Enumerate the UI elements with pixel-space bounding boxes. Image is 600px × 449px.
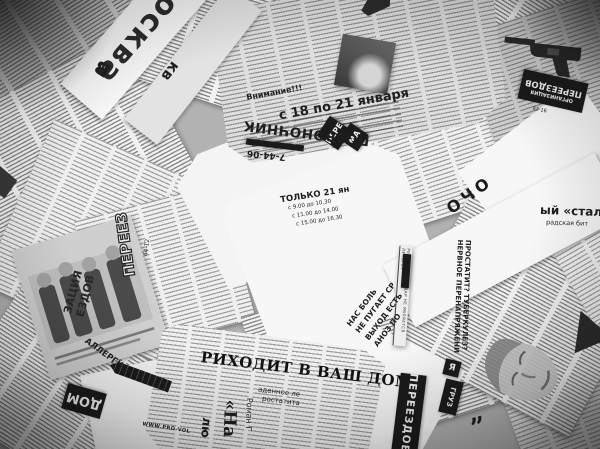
label-dom: ДОМ <box>65 389 103 413</box>
newspaper-collage-photo: осква в кв Внимание!!! с 18 по 21 января… <box>0 0 600 449</box>
byline-roman: Роман Г <box>243 398 254 432</box>
label-gruz: ГРУЗ <box>445 386 458 407</box>
label-pereezdov-text: ПЕРЕЕЗДОВ <box>398 372 420 449</box>
headline-stal-fragment: ый «стал <box>540 203 600 219</box>
headline-stal-sub: радская бит <box>546 219 588 228</box>
title-na-fragment: «На <box>219 399 240 437</box>
news-photo <box>334 34 396 95</box>
label-pereez-outline: ПЕРЕЕЗ <box>112 211 139 278</box>
fragment-lyu: лю <box>198 417 214 439</box>
label-ya: Я <box>447 362 456 373</box>
